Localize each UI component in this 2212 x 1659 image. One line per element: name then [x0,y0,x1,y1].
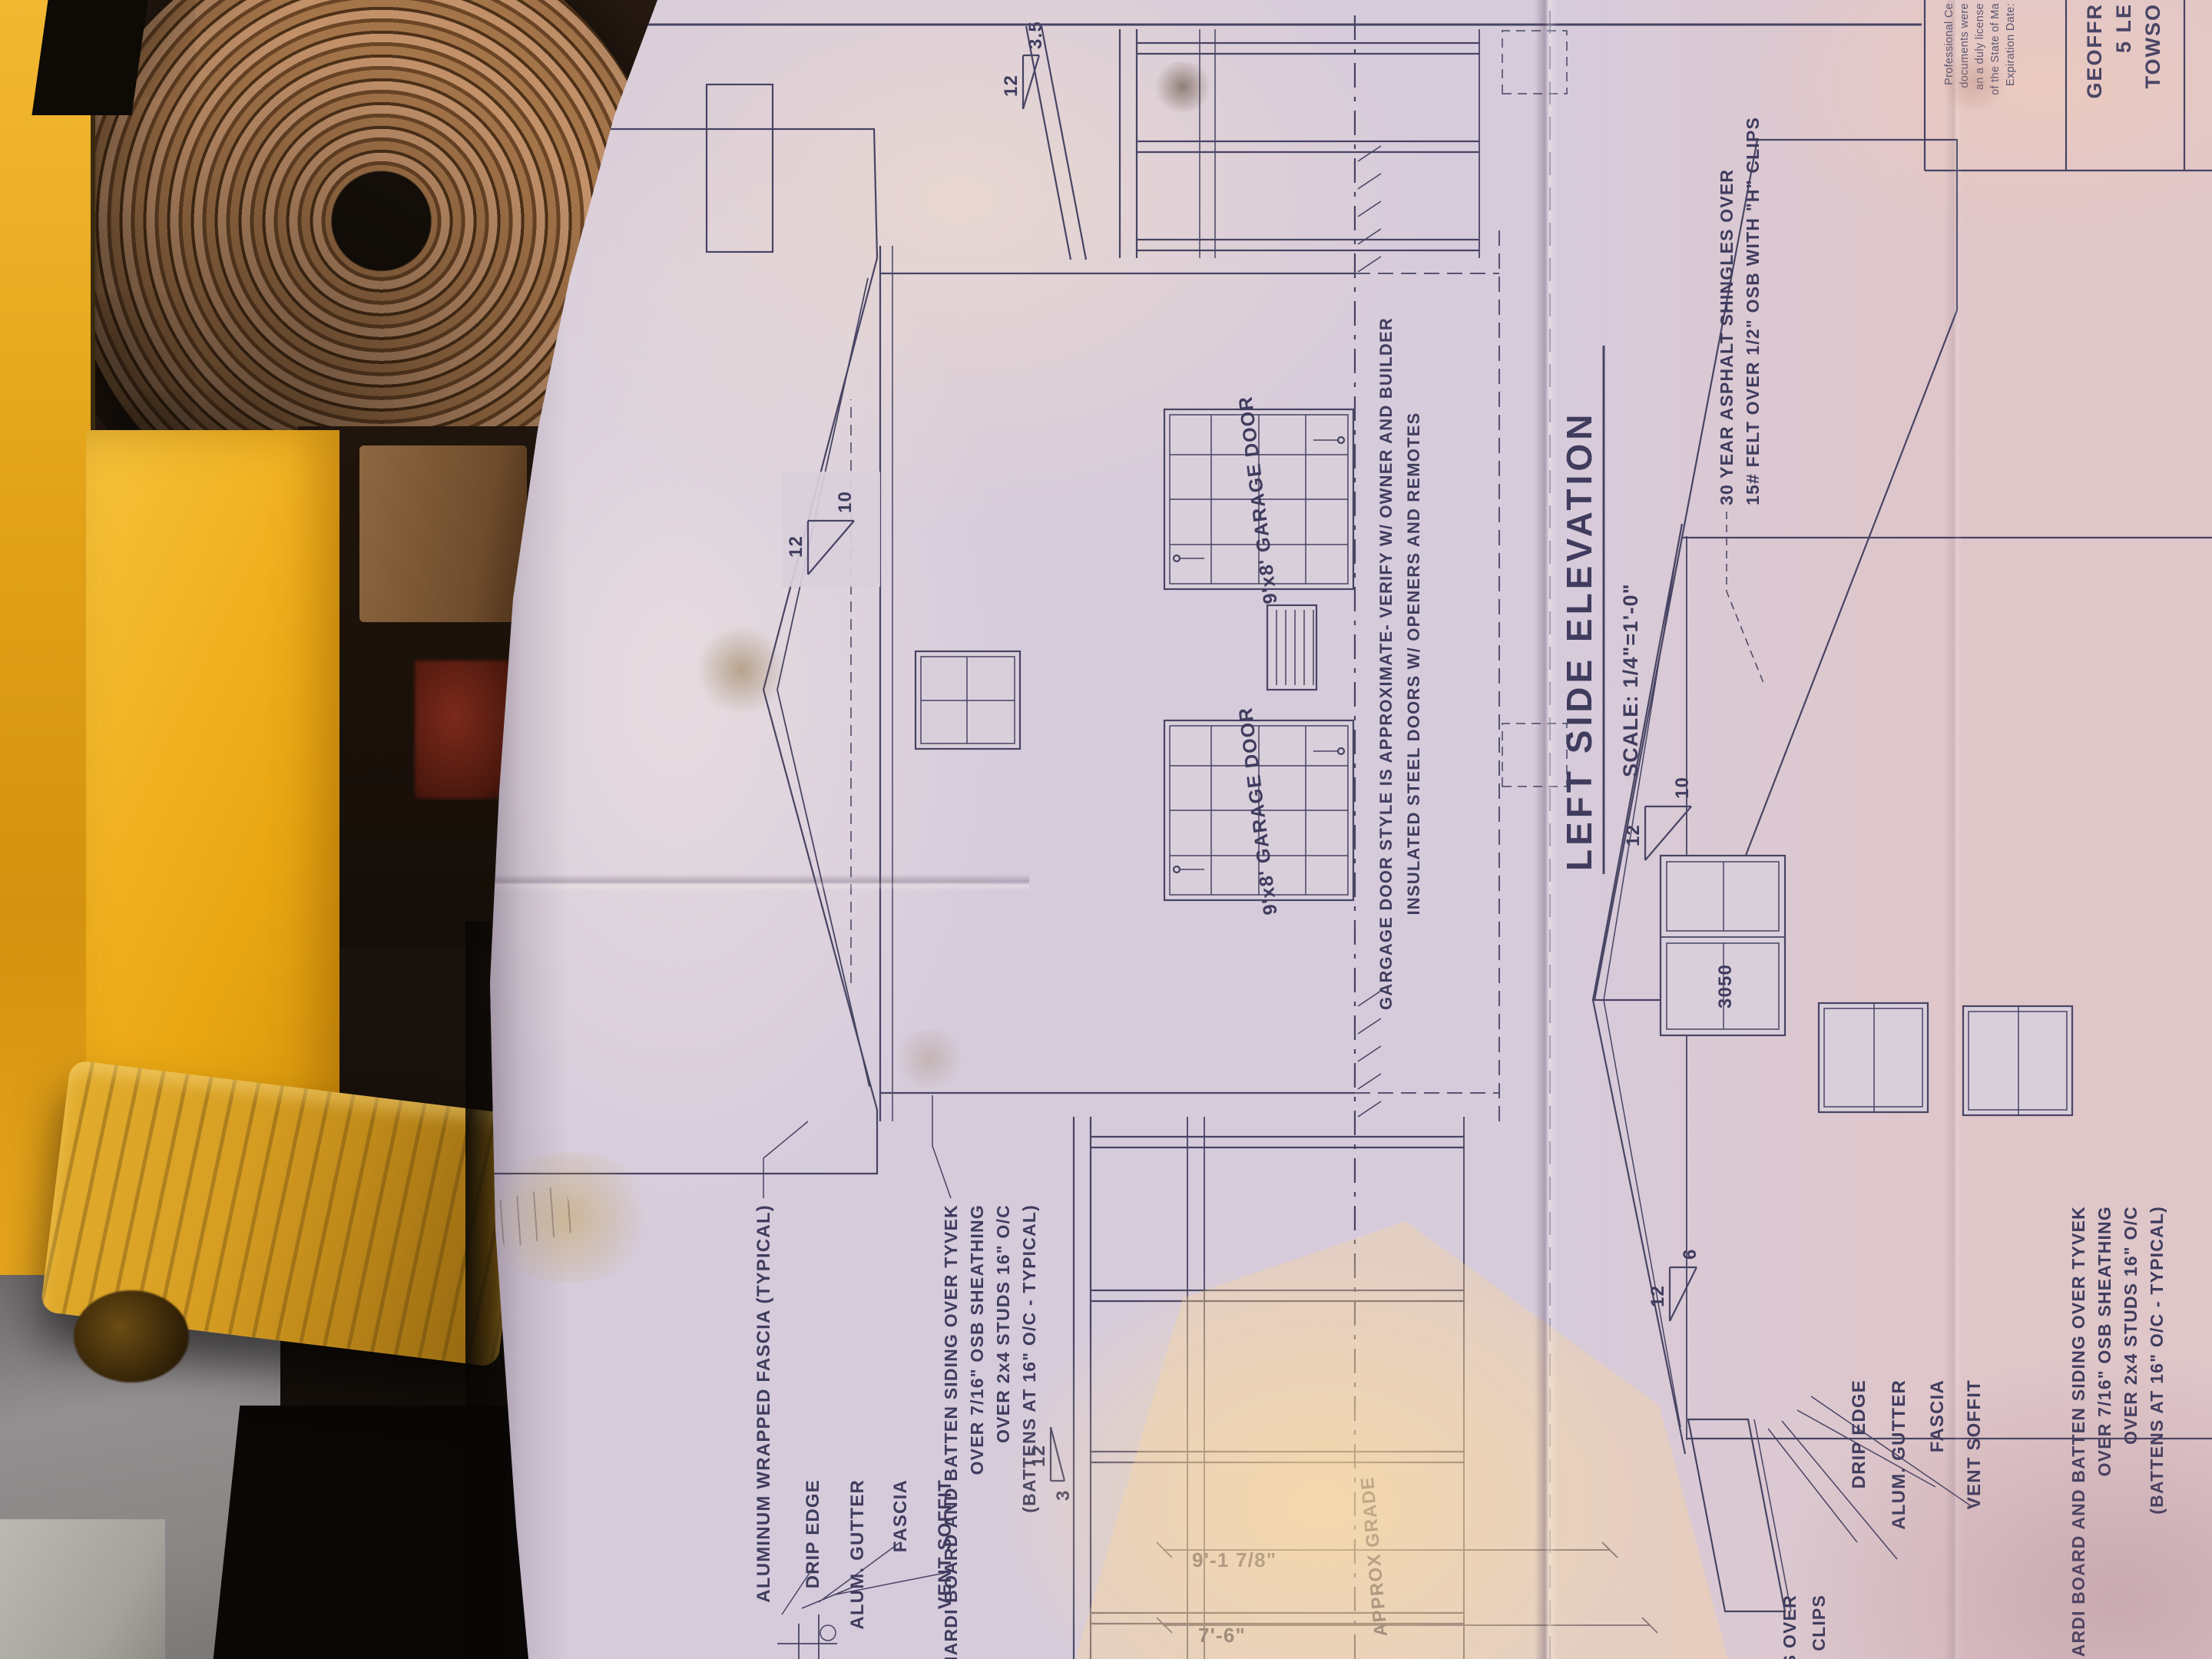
svg-text:HARDI BOARD AND BATTEN SIDING: HARDI BOARD AND BATTEN SIDING OVER TYVEK [2068,1206,2088,1659]
pitch-run: 12 [1647,1285,1668,1307]
arm-pivot [74,1290,189,1382]
elev1-left-porch [777,1117,1464,1659]
pitch-rise: 6 [1680,1248,1700,1260]
svg-text:(BATTENS AT 16" O/C - TYPICAL): (BATTENS AT 16" O/C - TYPICAL) [2147,1206,2167,1515]
svg-text:ALUMINUM WRAPPED FASCIA (TYPIC: ALUMINUM WRAPPED FASCIA (TYPICAL) [753,1204,774,1603]
eave-label: ALUM. GUTTER [847,1479,868,1630]
pitch-run: 12 [786,535,806,558]
concrete-light-patch [0,1519,165,1659]
svg-text:INSULATED STEEL DOORS W/ OPENE: INSULATED STEEL DOORS W/ OPENERS AND REM… [1404,412,1423,916]
cert-line: Expiration Date: [2005,3,2017,86]
vent-between-doors [1267,605,1316,690]
fascia-note: ALUMINUM WRAPPED FASCIA (TYPICAL) [753,1121,808,1603]
dim-text: 7'-6" [1198,1624,1246,1647]
clipped-shingle-note: LES OVER TH "H" CLIPS [1780,1594,1829,1659]
svg-text:OVER 7/16" OSB SHEATHING: OVER 7/16" OSB SHEATHING [2094,1206,2114,1476]
horizontal-fold-crease [492,874,1029,891]
eave-label: DRIP EDGE [1849,1379,1869,1488]
vertical-fold-crease [1535,0,1558,1659]
cardboard-box [359,445,527,622]
photo-scene: 9'x8' GARAGE DOOR 9'x8' GARAGE DOOR [0,0,2212,1659]
svg-text:LES OVER: LES OVER [1780,1594,1800,1659]
sheet-title: LEFT SIDE ELEVATION SCALE: 1/4"=1'-0" [1559,346,1642,874]
shingle-note: 30 YEAR ASPHALT SHINGLES OVER 15# FELT O… [1717,117,1765,687]
pitch-marker-main: 12 10 [782,472,880,587]
pitch-run: 12 [1623,824,1644,846]
svg-text:(BATTENS AT 16" O/C - TYPICAL): (BATTENS AT 16" O/C - TYPICAL) [1019,1204,1039,1513]
elev2-window-mid [1819,1003,1928,1112]
frame-notch [31,0,147,115]
title-text: LEFT SIDE ELEVATION [1559,411,1599,871]
dimension-lower: 7'-6" [1157,1618,1657,1647]
pitch-rise: 3 [1053,1489,1074,1501]
pitch-rise: 10 [1672,777,1693,799]
scale-text: SCALE: 1/4"=1'-0" [1619,583,1642,777]
svg-text:HARDI BOARD AND BATTEN SIDING: HARDI BOARD AND BATTEN SIDING OVER TYVEK [941,1204,961,1659]
svg-text:GARGAGE DOOR STYLE IS APPROXIM: GARGAGE DOOR STYLE IS APPROXIMATE- VERIF… [1376,317,1396,1010]
garage-note: GARGAGE DOOR STYLE IS APPROXIMATE- VERIF… [1376,317,1423,1010]
dim-text: 9'-1 7/8" [1192,1548,1277,1571]
elev1-right-porch [1026,26,1479,260]
eave-label: DRIP EDGE [803,1479,823,1588]
chimney [707,84,773,252]
eave-label: FASCIA [890,1479,911,1552]
window-size-label: 3050 [1715,964,1736,1008]
elev1-eave-labels: DRIP EDGE ALUM. GUTTER FASCIA VENT SOFFI… [782,1479,955,1630]
siding-note: HARDI BOARD AND BATTEN SIDING OVER TYVEK… [932,1095,1039,1659]
eave-label: VENT SOFFIT [1964,1379,1985,1509]
cert-line: of the State of Ma [1989,2,2002,94]
garage-door-left: 9'x8' GARAGE DOOR [1164,706,1353,916]
svg-text:TH "H" CLIPS: TH "H" CLIPS [1809,1594,1829,1659]
svg-text:OVER 7/16" OSB SHEATHING: OVER 7/16" OSB SHEATHING [967,1204,987,1475]
vertical-fold-crease-2 [1945,0,1963,1659]
elev2-window-low [1963,1006,2072,1115]
red-objects [415,661,515,799]
svg-text:30 YEAR ASPHALT SHINGLES OVER: 30 YEAR ASPHALT SHINGLES OVER [1717,169,1737,505]
elev1-gable-window [916,651,1020,749]
pitch-rise: 10 [835,491,856,513]
eave-label: ALUM. GUTTER [1889,1379,1909,1530]
firm-line: TOWSO [2141,3,2164,89]
garage-door-right: 9'x8' GARAGE DOOR [1164,395,1353,605]
pitch-run: 12 [1001,75,1022,97]
firm-line: 5 LE [2112,3,2135,53]
firm-line: GEOFFR [2083,3,2106,99]
svg-text:OVER 2x4 STUDS 16" O/C: OVER 2x4 STUDS 16" O/C [2121,1206,2141,1445]
elev2-attic-window: 3050 [1661,856,1785,1035]
svg-text:OVER 2x4 STUDS 16" O/C: OVER 2x4 STUDS 16" O/C [993,1204,1013,1443]
cert-line: an a duly license [1974,3,1986,90]
svg-text:15# FELT OVER 1/2" OSB WITH "H: 15# FELT OVER 1/2" OSB WITH "H" CLIPS [1743,117,1763,505]
clipped-siding-note: HARDI BOARD AND BATTEN SIDING OVER TYVEK… [2068,1206,2167,1659]
